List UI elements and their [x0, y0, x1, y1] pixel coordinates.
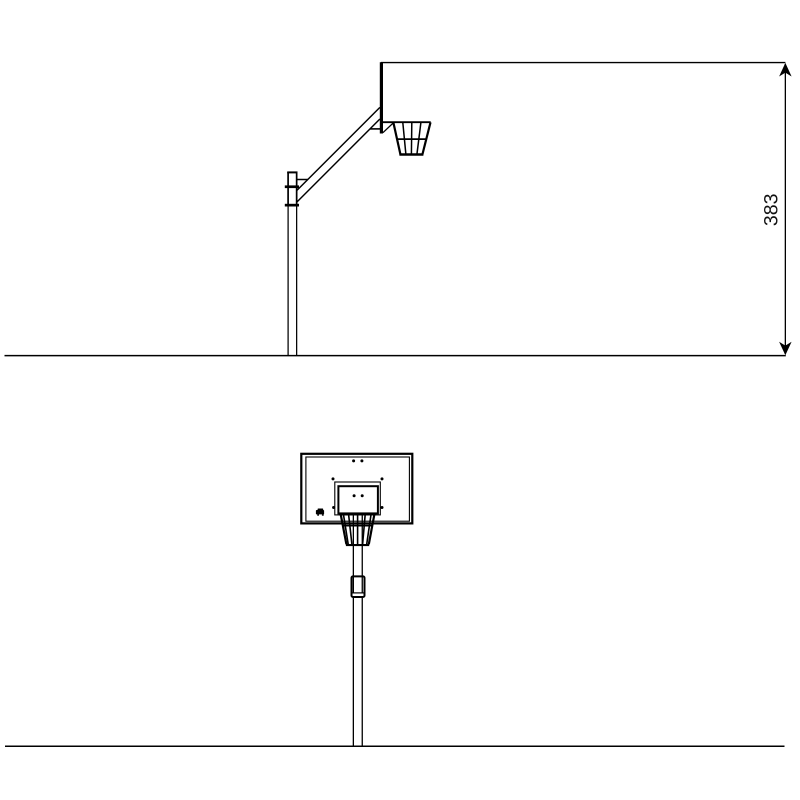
svg-text:383: 383 — [761, 194, 783, 227]
